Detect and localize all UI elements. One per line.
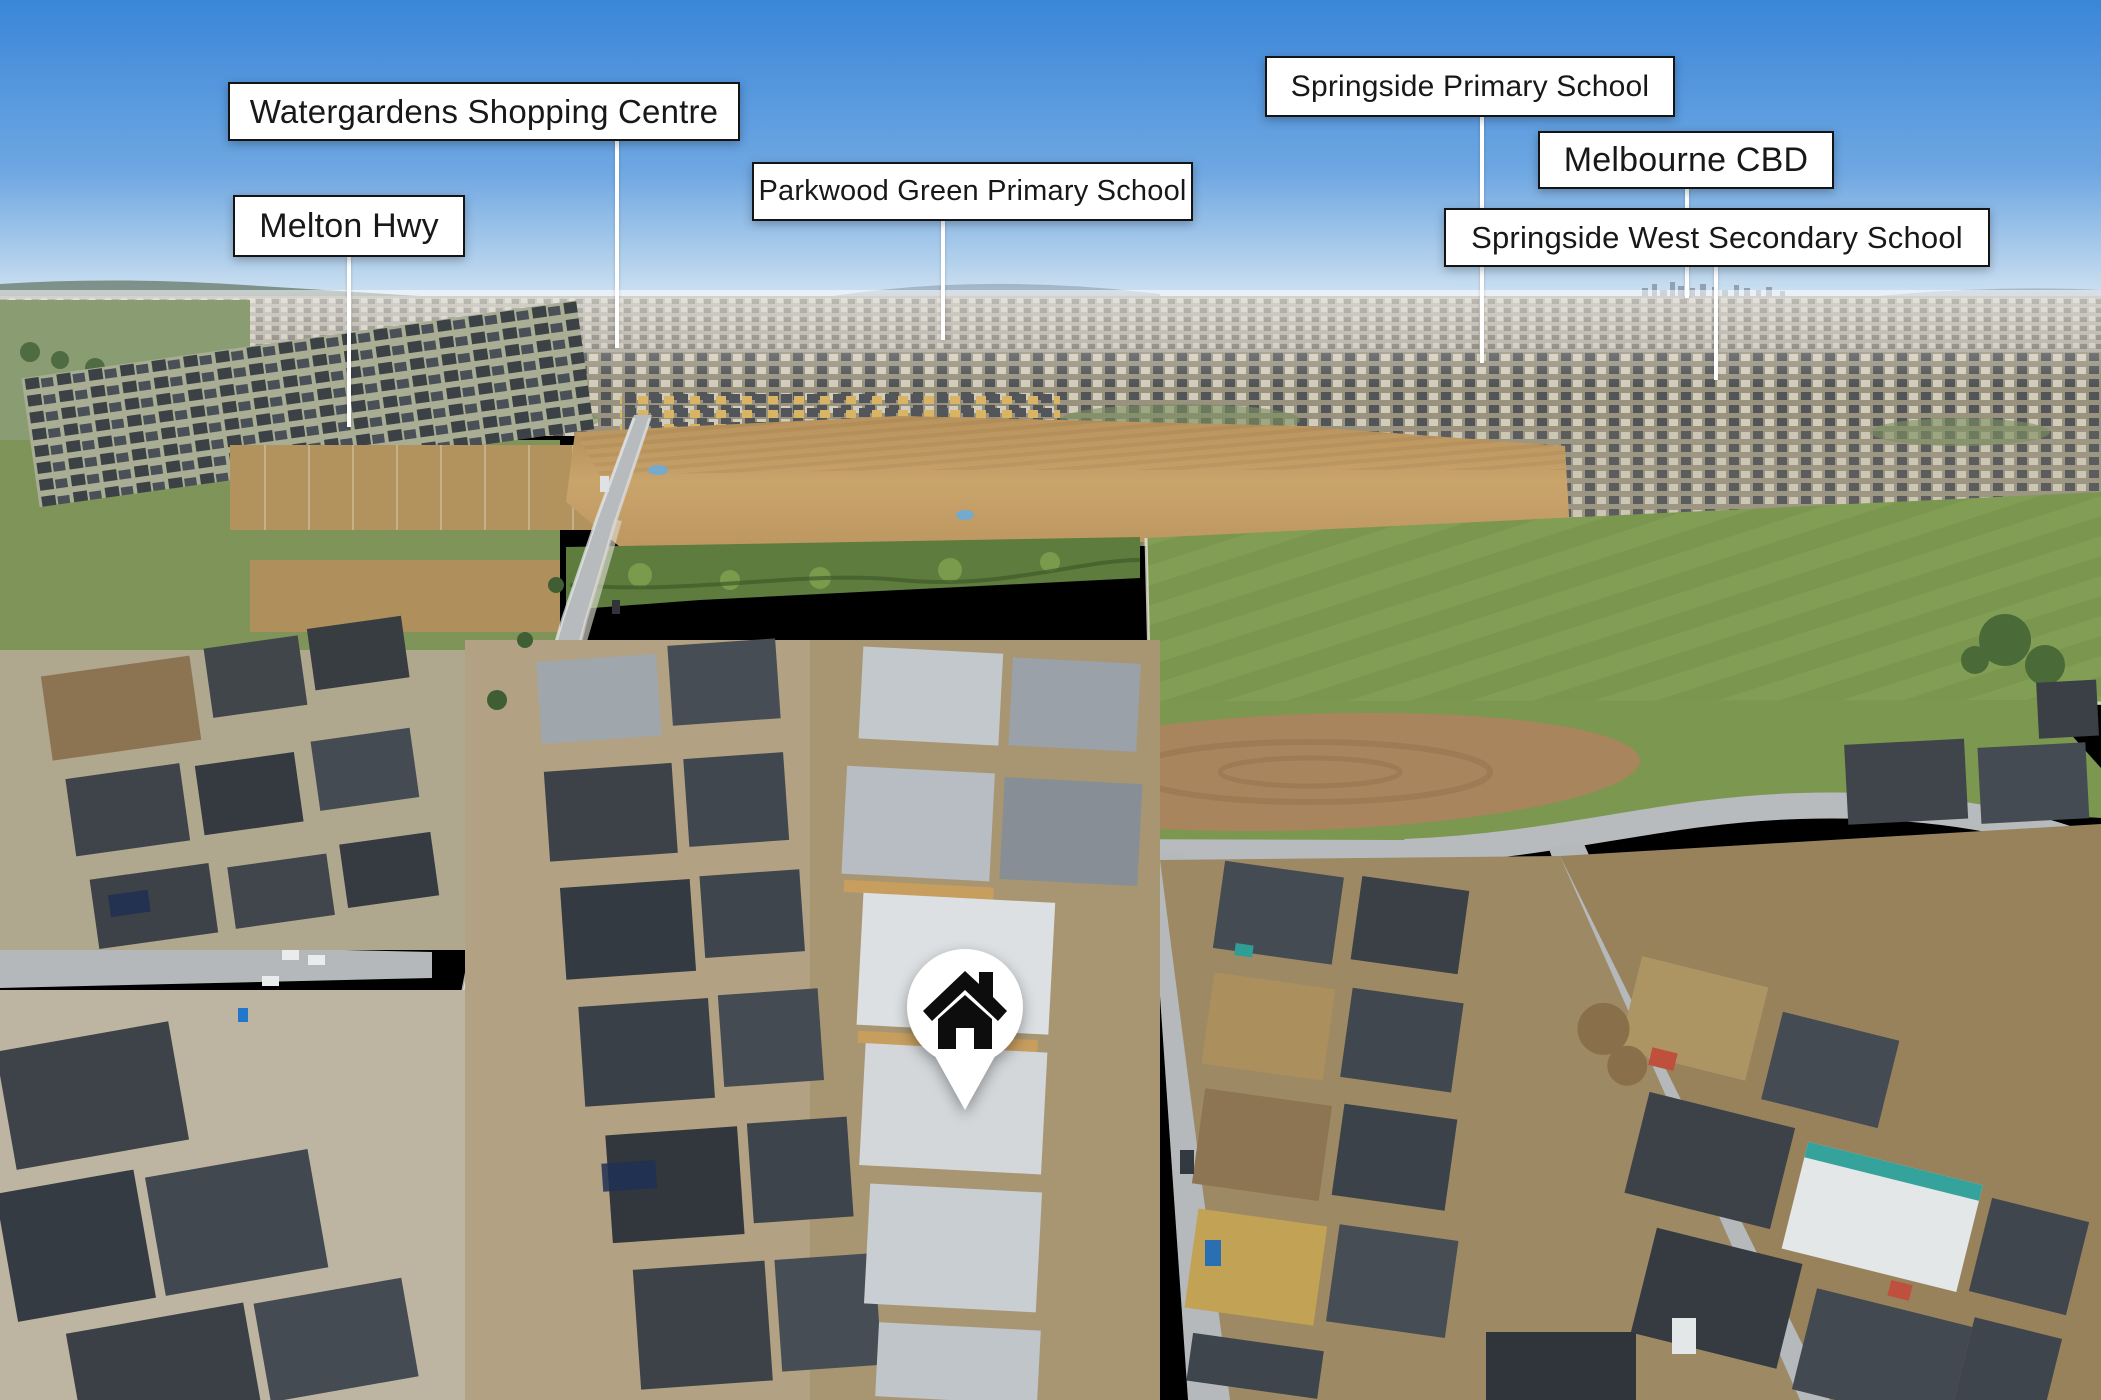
label-parkwood: Parkwood Green Primary School — [752, 162, 1193, 221]
label-springside-primary: Springside Primary School — [1265, 56, 1675, 117]
bottom-right-roof — [1486, 1332, 1636, 1400]
map-pin — [895, 945, 1035, 1115]
label-springside-west-text: Springside West Secondary School — [1471, 220, 1963, 256]
label-melton-hwy-text: Melton Hwy — [259, 207, 439, 246]
label-watergardens-text: Watergardens Shopping Centre — [250, 93, 719, 131]
pointer-line-watergardens — [615, 139, 619, 348]
label-springside-primary-text: Springside Primary School — [1291, 70, 1649, 104]
label-melbourne-cbd-text: Melbourne CBD — [1564, 141, 1809, 180]
label-springside-west: Springside West Secondary School — [1444, 208, 1990, 267]
label-watergardens: Watergardens Shopping Centre — [228, 82, 740, 141]
creek-band — [566, 537, 1140, 610]
label-melton-hwy: Melton Hwy — [233, 195, 465, 257]
aerial-photo: Watergardens Shopping Centre Melton Hwy … — [0, 0, 2101, 1400]
pointer-line-springside-west — [1714, 265, 1718, 380]
pointer-line-melton-hwy — [347, 255, 351, 427]
pointer-line-parkwood — [941, 219, 945, 340]
label-parkwood-text: Parkwood Green Primary School — [758, 175, 1186, 208]
label-melbourne-cbd: Melbourne CBD — [1538, 131, 1834, 189]
